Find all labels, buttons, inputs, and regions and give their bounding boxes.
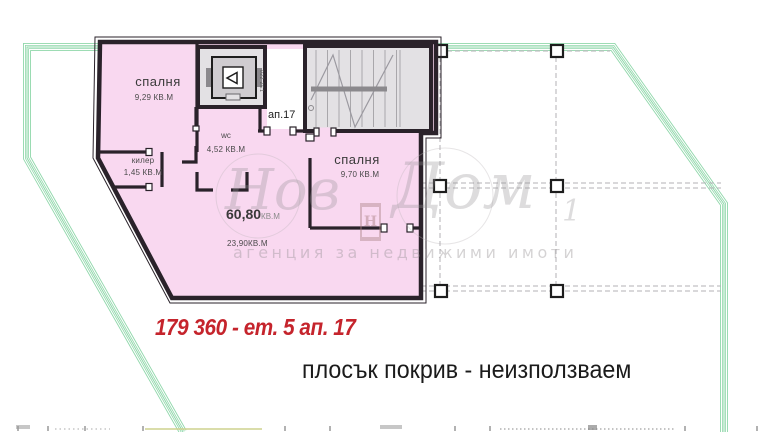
watermark-logo-letter: Н (364, 214, 377, 230)
bedroom2-name: спалня (317, 152, 397, 167)
wc-area: 4,52 КВ.М (196, 145, 256, 154)
apartment-number-label: ап.17 (268, 109, 295, 121)
elevator-rail-left (206, 68, 211, 87)
price-and-unit-label: 179 360 - ет. 5 ап. 17 (155, 314, 355, 341)
closet-area: 1,45 КВ.М (113, 168, 173, 177)
wc-name: wc (206, 131, 246, 140)
bedroom1-area: 9,29 КВ.М (114, 93, 194, 102)
watermark-logo: Н (360, 203, 381, 241)
floor-plan-page: Нов Дом 1 Н агенция за недвижими имоти с… (0, 0, 768, 432)
elevator-door (226, 94, 240, 100)
bedroom2-area: 9,70 КВ.М (320, 170, 400, 179)
flat-roof-note: плосък покрив - неизползваем (302, 356, 631, 385)
stairwell (305, 46, 431, 137)
living-area-total-value: 60,80 (226, 206, 261, 222)
closet-name: килер (113, 156, 173, 165)
watermark-brand-suffix: 1 (562, 194, 581, 229)
watermark-brand-second: Дом (392, 150, 536, 224)
living-area-net: 23,90КВ.М (227, 239, 268, 248)
elevator-spec-note: 022 ZE1 (258, 70, 264, 92)
bottom-ruler (16, 425, 757, 431)
living-area-total: 60,80КВ.М (226, 206, 280, 222)
living-area-total-unit: КВ.М (261, 212, 280, 221)
elevator (198, 47, 265, 107)
bedroom1-name: спалня (118, 74, 198, 89)
watermark-tagline: агенция за недвижими имоти (233, 243, 577, 262)
